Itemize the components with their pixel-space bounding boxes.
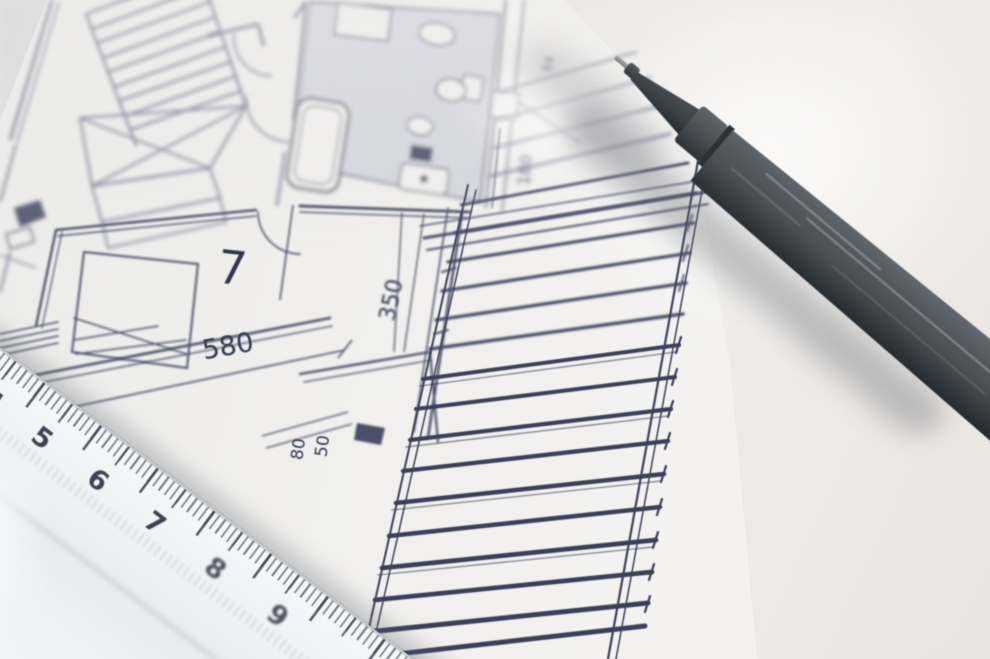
shower-tray (398, 163, 449, 195)
dim-80-label: 80 (287, 437, 310, 461)
terrace-planks-near (362, 150, 708, 659)
room-number-label: 7 (215, 240, 250, 297)
dim-350-label: 350 (375, 277, 408, 323)
photo-scene: 7 580 350 80 50 180 84 4 5 6 7 8 9 (0, 0, 990, 659)
staircase (80, 0, 246, 248)
bed (72, 252, 198, 368)
left-wall-and-paper-edge (0, 0, 59, 292)
dim-580-label: 580 (200, 327, 256, 366)
dim-50-label: 50 (312, 434, 335, 458)
floor-drain (409, 145, 433, 163)
bathroom-window (334, 3, 391, 41)
